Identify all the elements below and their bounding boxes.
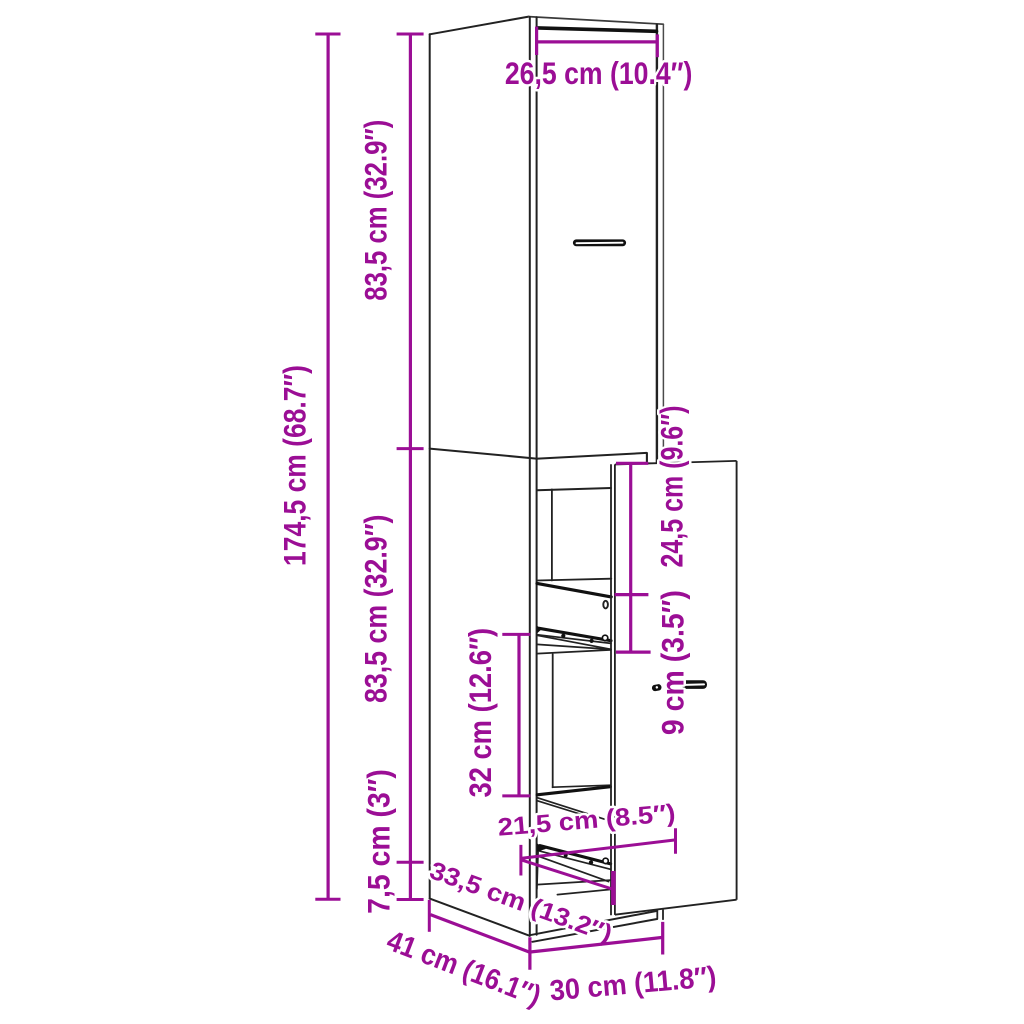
svg-text:83,5 cm (32.9″): 83,5 cm (32.9″) <box>358 120 394 301</box>
svg-text:9 cm (3.5″): 9 cm (3.5″) <box>655 590 691 735</box>
svg-text:174,5 cm (68.7″): 174,5 cm (68.7″) <box>277 365 313 566</box>
svg-text:7,5 cm (3″): 7,5 cm (3″) <box>360 769 396 914</box>
svg-text:26,5 cm (10.4″): 26,5 cm (10.4″) <box>505 55 693 91</box>
svg-text:24,5 cm (9.6″): 24,5 cm (9.6″) <box>654 406 690 568</box>
svg-text:83,5 cm (32.9″): 83,5 cm (32.9″) <box>358 515 394 704</box>
svg-text:32 cm (12.6″): 32 cm (12.6″) <box>462 628 498 798</box>
